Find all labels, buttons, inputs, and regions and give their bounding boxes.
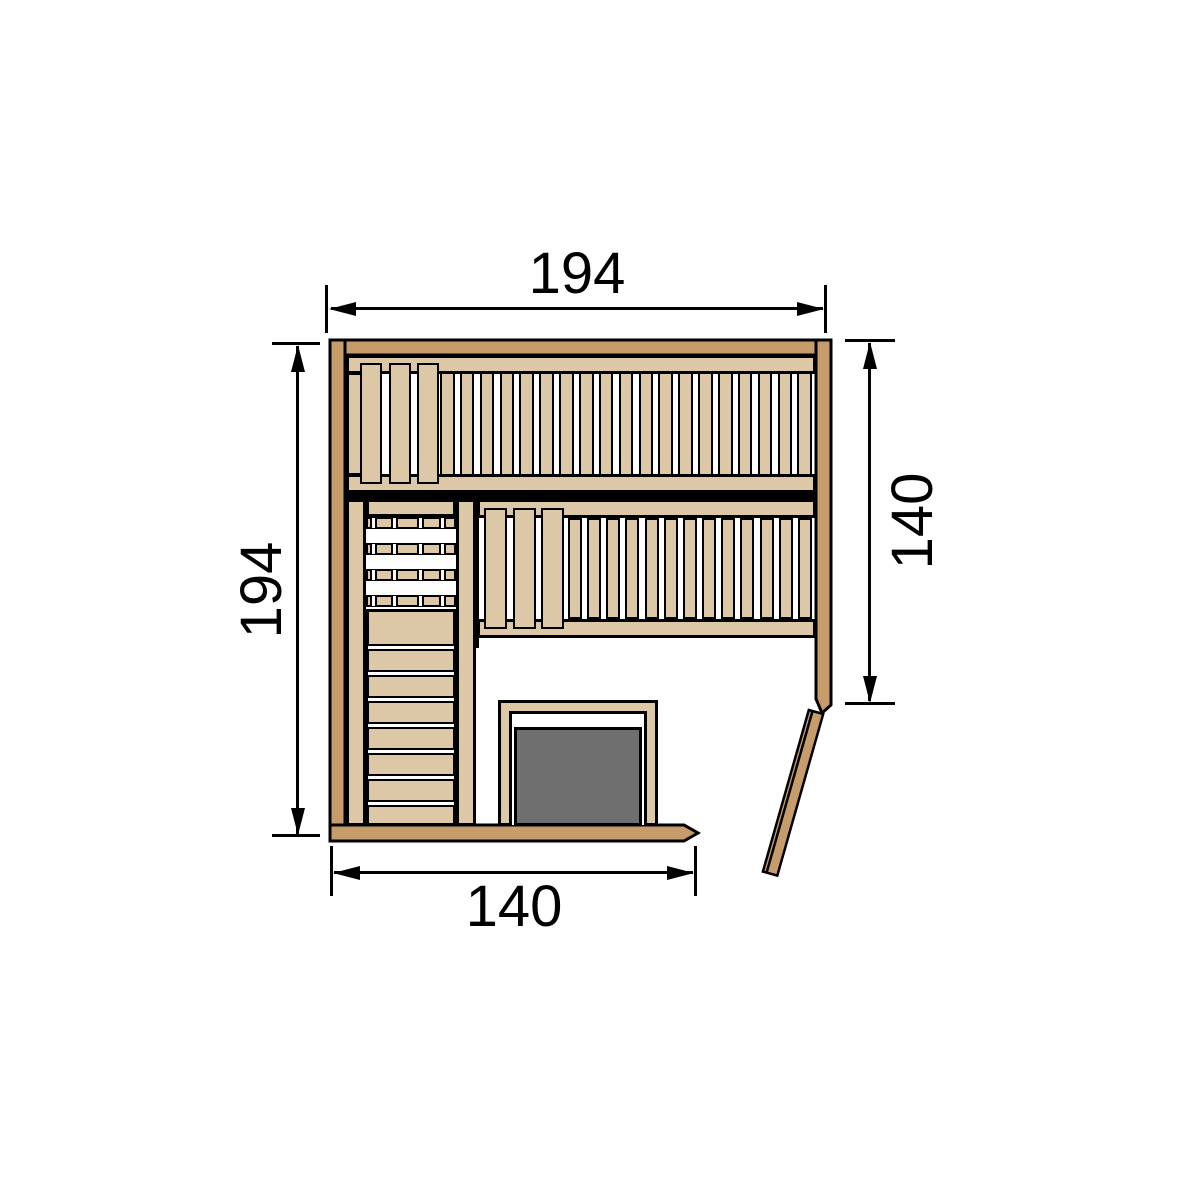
dim-left-line	[296, 346, 299, 834]
dim-bottom-arrow-left	[333, 866, 360, 880]
bench-slat	[440, 372, 455, 476]
dim-top-arrow-right	[797, 302, 824, 316]
bench-slat	[740, 518, 754, 619]
slat-gap	[391, 544, 398, 554]
bench-slat	[460, 372, 475, 476]
sauna-floor-plan-diagram: 194 194 140 140	[0, 0, 1200, 1200]
door-panel-line	[767, 711, 813, 873]
top-bench-narrow-slats	[440, 372, 812, 476]
bench-slat	[541, 508, 564, 629]
slat-gap	[368, 774, 454, 781]
bench-slat	[500, 372, 515, 476]
slat-gap	[368, 722, 454, 729]
dim-top-left-tick	[325, 285, 328, 333]
slat-gap	[391, 596, 398, 606]
slat-gap	[417, 596, 424, 606]
bench-slat	[606, 518, 620, 619]
left-bench-top-cap	[366, 499, 456, 517]
slat-gap	[391, 518, 398, 528]
slat-gap	[368, 670, 454, 677]
bench-slat	[702, 518, 716, 619]
slat-gap	[391, 570, 398, 580]
bench-slat	[599, 372, 614, 476]
dim-right-line	[868, 343, 871, 701]
slat-gap	[439, 544, 446, 554]
bench-slat	[779, 518, 793, 619]
dim-right-label: 140	[884, 411, 942, 631]
slat-gap	[417, 544, 424, 554]
top-wall	[330, 340, 831, 355]
bench-slat	[579, 372, 594, 476]
left-bench-plain-slats	[366, 609, 456, 826]
bench-slat	[797, 372, 812, 476]
dim-right-arrow-up	[863, 342, 877, 369]
bench-slat	[760, 518, 774, 619]
right-wall	[816, 340, 831, 713]
dim-left-arrow-down	[291, 808, 305, 835]
bench-slat	[778, 372, 793, 476]
dashed-slat	[366, 569, 456, 581]
dim-bottom-arrow-right	[667, 866, 694, 880]
bench-slat	[389, 363, 411, 484]
bench-slat	[360, 363, 382, 484]
bench-slat	[587, 518, 601, 619]
dim-left-label: 194	[233, 480, 291, 700]
dim-right-arrow-down	[863, 676, 877, 703]
right-bench-narrow-slats	[568, 518, 812, 619]
bench-slat	[683, 518, 697, 619]
bench-slat	[568, 518, 582, 619]
bench-slat	[559, 372, 574, 476]
slat-gap	[370, 518, 377, 528]
heater	[514, 727, 642, 826]
slat-gap	[417, 570, 424, 580]
bench-slat	[721, 518, 735, 619]
bench-slat	[639, 372, 654, 476]
bench-front-edge-line	[346, 491, 816, 499]
slat-gap	[368, 644, 454, 651]
top-bench-wide-slats	[360, 363, 439, 484]
slat-gap	[417, 518, 424, 528]
dashed-slat	[366, 517, 456, 529]
slat-gap	[370, 596, 377, 606]
bench-slat	[738, 372, 753, 476]
slat-gap	[370, 544, 377, 554]
left-wall	[330, 340, 345, 841]
dashed-slat	[366, 595, 456, 607]
bench-slat	[718, 372, 733, 476]
bench-slat	[417, 363, 439, 484]
bottom-wall	[330, 825, 698, 841]
bench-slat	[798, 518, 812, 619]
slat-gap	[370, 570, 377, 580]
bench-slat	[619, 372, 634, 476]
bench-slat	[480, 372, 495, 476]
slat-gap	[439, 518, 446, 528]
bench-slat	[539, 372, 554, 476]
bench-slat	[664, 518, 678, 619]
bench-slat	[625, 518, 639, 619]
dim-top-arrow-left	[329, 302, 356, 316]
slat-gap	[439, 570, 446, 580]
bench-slat	[519, 372, 534, 476]
right-bench-wide-slats	[484, 508, 564, 629]
bench-slat	[758, 372, 773, 476]
dashed-slat	[366, 543, 456, 555]
slat-gap	[368, 696, 454, 703]
left-bench-left-rail	[346, 499, 366, 826]
dim-bottom-right-tick	[694, 846, 697, 896]
dim-bottom-label: 140	[404, 878, 624, 936]
bench-slat	[658, 372, 673, 476]
slat-gap	[439, 596, 446, 606]
dim-top-label: 194	[467, 245, 687, 303]
left-bench-dashed-slats	[366, 517, 456, 607]
slat-gap	[368, 748, 454, 755]
slat-gap	[368, 800, 454, 807]
bench-slat	[678, 372, 693, 476]
dim-left-arrow-up	[291, 345, 305, 372]
dim-top-line	[331, 307, 823, 310]
bench-slat	[645, 518, 659, 619]
bench-slat	[513, 508, 536, 629]
dim-top-right-tick	[824, 285, 827, 333]
bench-slat	[484, 508, 507, 629]
bench-slat	[698, 372, 713, 476]
